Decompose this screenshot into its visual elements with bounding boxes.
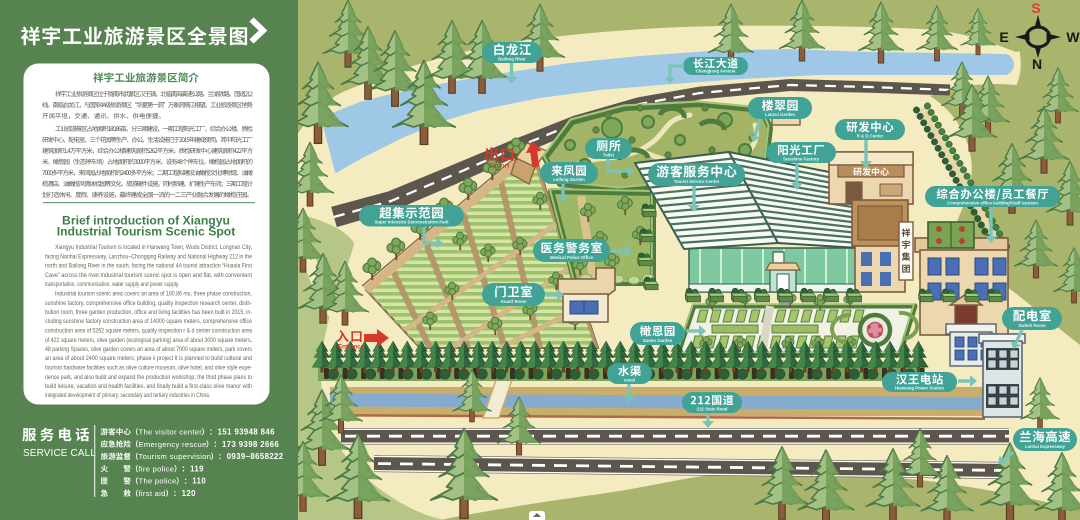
svg-text:transportation, communication,: transportation, communication, water sup… <box>45 281 179 288</box>
svg-text:Export: Export <box>489 163 510 170</box>
svg-text:north and Bailong River in the: north and Bailong River in the south, fa… <box>45 263 252 270</box>
svg-text:The visitor center: The visitor center <box>139 428 203 437</box>
svg-text:an area of about 2400 square m: an area of about 2400 square meters; pha… <box>45 355 252 362</box>
svg-text:first aid: first aid <box>139 489 166 498</box>
svg-text:cluding sunshine factory const: cluding sunshine factory construction ar… <box>45 318 252 325</box>
svg-text:Medical Police Office: Medical Police Office <box>550 255 594 260</box>
svg-text:The police: The police <box>139 477 177 486</box>
svg-text:Super Intensive Demonstration: Super Intensive Demonstration Park <box>374 220 449 225</box>
svg-text:rience park, and also build an: rience park, and also build and expand t… <box>45 374 252 381</box>
svg-text:212 State Road: 212 State Road <box>697 406 728 411</box>
svg-text:Switch Room: Switch Room <box>1018 323 1045 328</box>
svg-text:Xiangyu Industrial Tourism is: Xiangyu Industrial Tourism is located in… <box>55 244 252 251</box>
svg-text:120: 120 <box>182 489 196 498</box>
svg-text:W: W <box>1066 29 1080 45</box>
svg-text:sunshine factory, comprehensiv: sunshine factory, comprehensive office b… <box>45 300 252 307</box>
svg-text:N: N <box>1032 56 1042 72</box>
svg-text:Lancui Garden: Lancui Garden <box>765 112 795 117</box>
svg-text:119: 119 <box>190 464 204 473</box>
svg-text:Toilet: Toilet <box>603 152 615 157</box>
svg-text:Entrance: Entrance <box>338 345 364 351</box>
svg-text:Cave” across the river.Industr: Cave” across the river.Industrial touris… <box>45 272 252 279</box>
svg-text:E: E <box>999 29 1008 45</box>
svg-text:48 parking Spaces, olive garde: 48 parking Spaces, olive garden covers a… <box>45 346 252 353</box>
svg-text:Lanhai Expressway: Lanhai Expressway <box>1025 444 1065 449</box>
svg-text:Tourism supervision: Tourism supervision <box>139 452 212 461</box>
svg-text:Industrial Tourism Scenic Spot: Industrial Tourism Scenic Spot <box>57 225 236 239</box>
svg-text:fire police: fire police <box>139 464 175 473</box>
svg-text:Ganen Garden: Ganen Garden <box>643 338 673 343</box>
svg-text:Industrial tourism scenic area: Industrial tourism scenic area covers an… <box>55 291 252 298</box>
svg-text:construction area of 5262 squa: construction area of 5262 square meters,… <box>45 328 252 335</box>
svg-text:canal: canal <box>624 377 635 382</box>
svg-text:Hanwang Power Station: Hanwang Power Station <box>895 385 944 390</box>
svg-text:Guard Room: Guard Room <box>500 299 526 304</box>
svg-text:R & D Center: R & D Center <box>857 133 884 138</box>
svg-text:build leisure, vacation and he: build leisure, vacation and health facil… <box>45 383 252 390</box>
svg-text:Changjiang Avenue: Changjiang Avenue <box>696 69 736 74</box>
svg-text:Comprehensive office building/: Comprehensive office building/Staff cant… <box>947 200 1038 205</box>
svg-text:Leifeng Garden: Leifeng Garden <box>553 177 585 182</box>
svg-text:S: S <box>1031 0 1040 16</box>
svg-text:bution room, three garden prod: bution room, three garden production, of… <box>45 309 252 316</box>
svg-text:110: 110 <box>192 477 206 486</box>
svg-text:Sunshine Factory: Sunshine Factory <box>783 156 820 161</box>
svg-text:Bailong River: Bailong River <box>498 56 526 61</box>
svg-text:0939–8658222: 0939–8658222 <box>227 452 284 461</box>
svg-text:SERVICE CALL: SERVICE CALL <box>23 448 96 459</box>
svg-text:tourism hardware facilities su: tourism hardware facilities such as oliv… <box>45 365 252 372</box>
svg-text:integrated development of prim: integrated development of primary, secon… <box>45 392 210 399</box>
svg-text:151 93948 846: 151 93948 846 <box>218 428 275 437</box>
svg-text:Emergency rescue: Emergency rescue <box>139 440 207 449</box>
svg-text:of 422 square meters, olive ga: of 422 square meters, olive garden (ecol… <box>45 337 252 344</box>
svg-text:Tourist Service Center: Tourist Service Center <box>674 179 720 184</box>
svg-text:173 9398 2666: 173 9398 2666 <box>222 440 279 449</box>
svg-text:facing Nanhai Expressway, Lanz: facing Nanhai Expressway, Lanzhou–Chongq… <box>45 253 252 260</box>
